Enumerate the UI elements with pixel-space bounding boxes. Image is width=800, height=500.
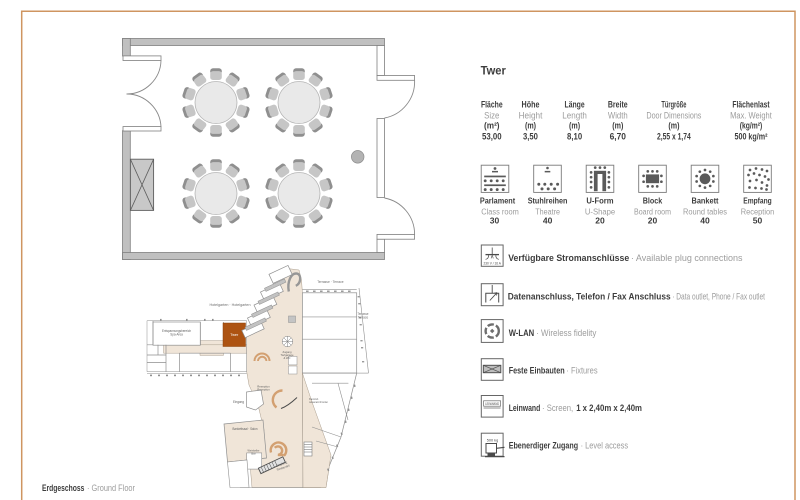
svg-text:500 kg: 500 kg	[487, 438, 498, 442]
svg-text:Max. Weight: Max. Weight	[730, 110, 772, 120]
svg-text:Reception: Reception	[741, 207, 775, 216]
svg-text:Round tables: Round tables	[683, 207, 727, 216]
svg-text:Block: Block	[643, 197, 663, 206]
svg-text:W-LAN: W-LAN	[509, 328, 535, 338]
svg-text:500 kg/m²: 500 kg/m²	[735, 132, 768, 142]
svg-text:· Data outlet, Phone / Fax out: · Data outlet, Phone / Fax outlet	[672, 291, 765, 301]
svg-text:Ebenerdiger Zugang: Ebenerdiger Zugang	[509, 441, 578, 451]
svg-text:Hotelgarten · Hotelgarten: Hotelgarten · Hotelgarten	[210, 303, 251, 307]
svg-text:Bankettsaal · Salon: Bankettsaal · Salon	[233, 427, 258, 431]
svg-text:Terrasse · Terrace: Terrasse · Terrace	[317, 280, 344, 284]
svg-text:(m): (m)	[525, 120, 536, 130]
svg-text:6,70: 6,70	[610, 132, 626, 142]
svg-text:1 x 2,40m x 2,40m: 1 x 2,40m x 2,40m	[576, 403, 642, 413]
svg-text:Feste Einbauten: Feste Einbauten	[509, 366, 565, 376]
svg-text:· Level access: · Level access	[581, 441, 629, 451]
svg-text:Height: Height	[519, 110, 543, 120]
svg-text:53,00: 53,00	[482, 132, 502, 142]
svg-text:Fläche: Fläche	[481, 100, 503, 110]
svg-text:Class room: Class room	[481, 207, 519, 216]
svg-text:20: 20	[595, 217, 605, 226]
svg-text:Spa-Area: Spa-Area	[170, 333, 183, 337]
svg-text:Parlament: Parlament	[480, 197, 516, 206]
svg-text:Höhe: Höhe	[522, 100, 540, 110]
svg-text:Leinwand: Leinwand	[509, 403, 541, 413]
svg-text:30: 30	[490, 217, 500, 226]
svg-text:Türgröße: Türgröße	[661, 100, 686, 110]
svg-text:Verfügbare Stromanschlüsse: Verfügbare Stromanschlüsse	[508, 253, 629, 263]
svg-text:U-Shape: U-Shape	[585, 207, 616, 216]
svg-text:Reception: Reception	[257, 388, 270, 392]
svg-text:3,50: 3,50	[523, 132, 538, 142]
svg-text:Eingang: Eingang	[233, 400, 244, 404]
svg-text:(m): (m)	[668, 120, 679, 130]
svg-text:· Screen,: · Screen,	[542, 403, 573, 413]
svg-text:U-Form: U-Form	[586, 197, 613, 206]
svg-text:· Available plug connections: · Available plug connections	[631, 253, 743, 263]
svg-text:(m): (m)	[612, 120, 623, 130]
svg-text:2,55 x 1,74: 2,55 x 1,74	[657, 132, 691, 142]
svg-text:40: 40	[543, 217, 553, 226]
svg-text:Theatre: Theatre	[535, 207, 560, 216]
svg-text:& WC: & WC	[284, 356, 292, 360]
svg-text:Datenanschluss, Telefon / Fax: Datenanschluss, Telefon / Fax Anschluss	[508, 291, 671, 301]
svg-text:· Fixtures: · Fixtures	[566, 366, 598, 376]
svg-text:· Wireless fidelity: · Wireless fidelity	[536, 328, 597, 338]
svg-text:Twer: Twer	[230, 332, 239, 337]
svg-text:40: 40	[700, 217, 710, 226]
svg-text:50: 50	[753, 217, 763, 226]
svg-text:Länge: Länge	[565, 100, 585, 110]
svg-text:Door Dimensions: Door Dimensions	[646, 110, 701, 120]
svg-text:Breite: Breite	[608, 100, 628, 110]
svg-text:Flächenlast: Flächenlast	[732, 100, 769, 110]
svg-text:(m²): (m²)	[484, 120, 500, 130]
svg-text:Terrace: Terrace	[358, 316, 369, 320]
svg-text:20: 20	[648, 217, 658, 226]
svg-text:Stuhlreihen: Stuhlreihen	[528, 197, 568, 206]
svg-text:Size: Size	[484, 110, 499, 120]
svg-text:Twer: Twer	[481, 65, 507, 78]
svg-text:· Ground Floor: · Ground Floor	[87, 483, 135, 493]
svg-text:Erdgeschoss: Erdgeschoss	[42, 483, 84, 493]
svg-text:LEINWAND: LEINWAND	[485, 402, 500, 406]
svg-text:restaurant till winter: restaurant till winter	[309, 400, 328, 404]
svg-text:Bankett: Bankett	[692, 197, 719, 206]
svg-text:Length: Length	[562, 110, 587, 120]
svg-text:Width: Width	[608, 110, 628, 120]
svg-text:8,10: 8,10	[567, 132, 582, 142]
svg-text:Board room: Board room	[634, 207, 671, 216]
svg-text:Empfang: Empfang	[743, 197, 772, 206]
svg-text:Bar: Bar	[251, 452, 256, 456]
svg-text:230 V / 16 A: 230 V / 16 A	[484, 262, 502, 266]
svg-text:(m): (m)	[569, 120, 580, 130]
svg-text:(kg/m²): (kg/m²)	[740, 120, 763, 130]
